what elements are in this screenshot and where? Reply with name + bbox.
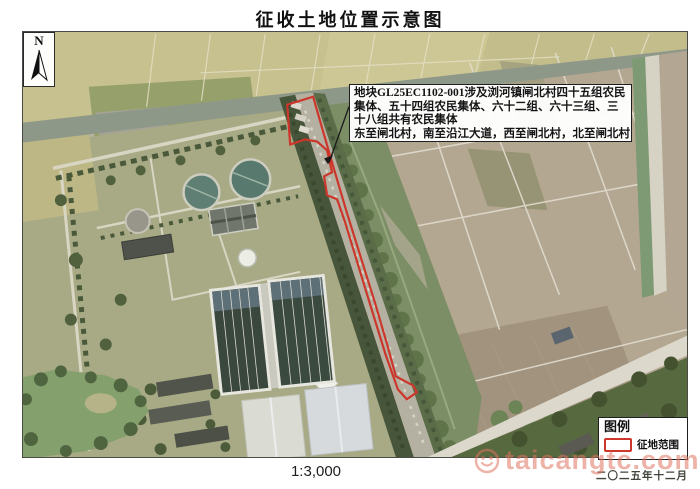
annotation-line: 东至闸北村，南至沿江大道，西至闸北村，北至闸北村 <box>354 128 627 142</box>
annotation-line: 集体、五十四组农民集体、六十二组、六十三组、三 <box>354 101 627 115</box>
acquisition-extent-symbol <box>604 438 632 452</box>
legend-box: 图例 征地范围 <box>598 417 688 460</box>
north-label: N <box>24 33 54 48</box>
legend-title: 图例 <box>604 419 682 435</box>
north-arrow: N <box>23 32 55 87</box>
small-tank <box>126 209 150 233</box>
land-acquisition-map-page: 征收土地位置示意图 <box>0 0 700 489</box>
legend-item: 征地范围 <box>604 437 682 452</box>
parcel-annotation-box: 地块GL25EC1102-001涉及浏河镇闸北村四十五组农民 集体、五十四组农民… <box>349 84 632 142</box>
map-scale: 1:3,000 <box>256 463 376 480</box>
map-date: 二〇二五年十二月 <box>590 468 694 483</box>
white-dome <box>238 249 256 267</box>
compass-needle-icon <box>24 48 54 84</box>
legend-item-label: 征地范围 <box>637 437 679 452</box>
annotation-line: 十八组共有农民集体 <box>354 114 627 128</box>
page-title: 征收土地位置示意图 <box>0 6 700 32</box>
annotation-line: 地块GL25EC1102-001涉及浏河镇闸北村四十五组农民 <box>354 87 627 101</box>
